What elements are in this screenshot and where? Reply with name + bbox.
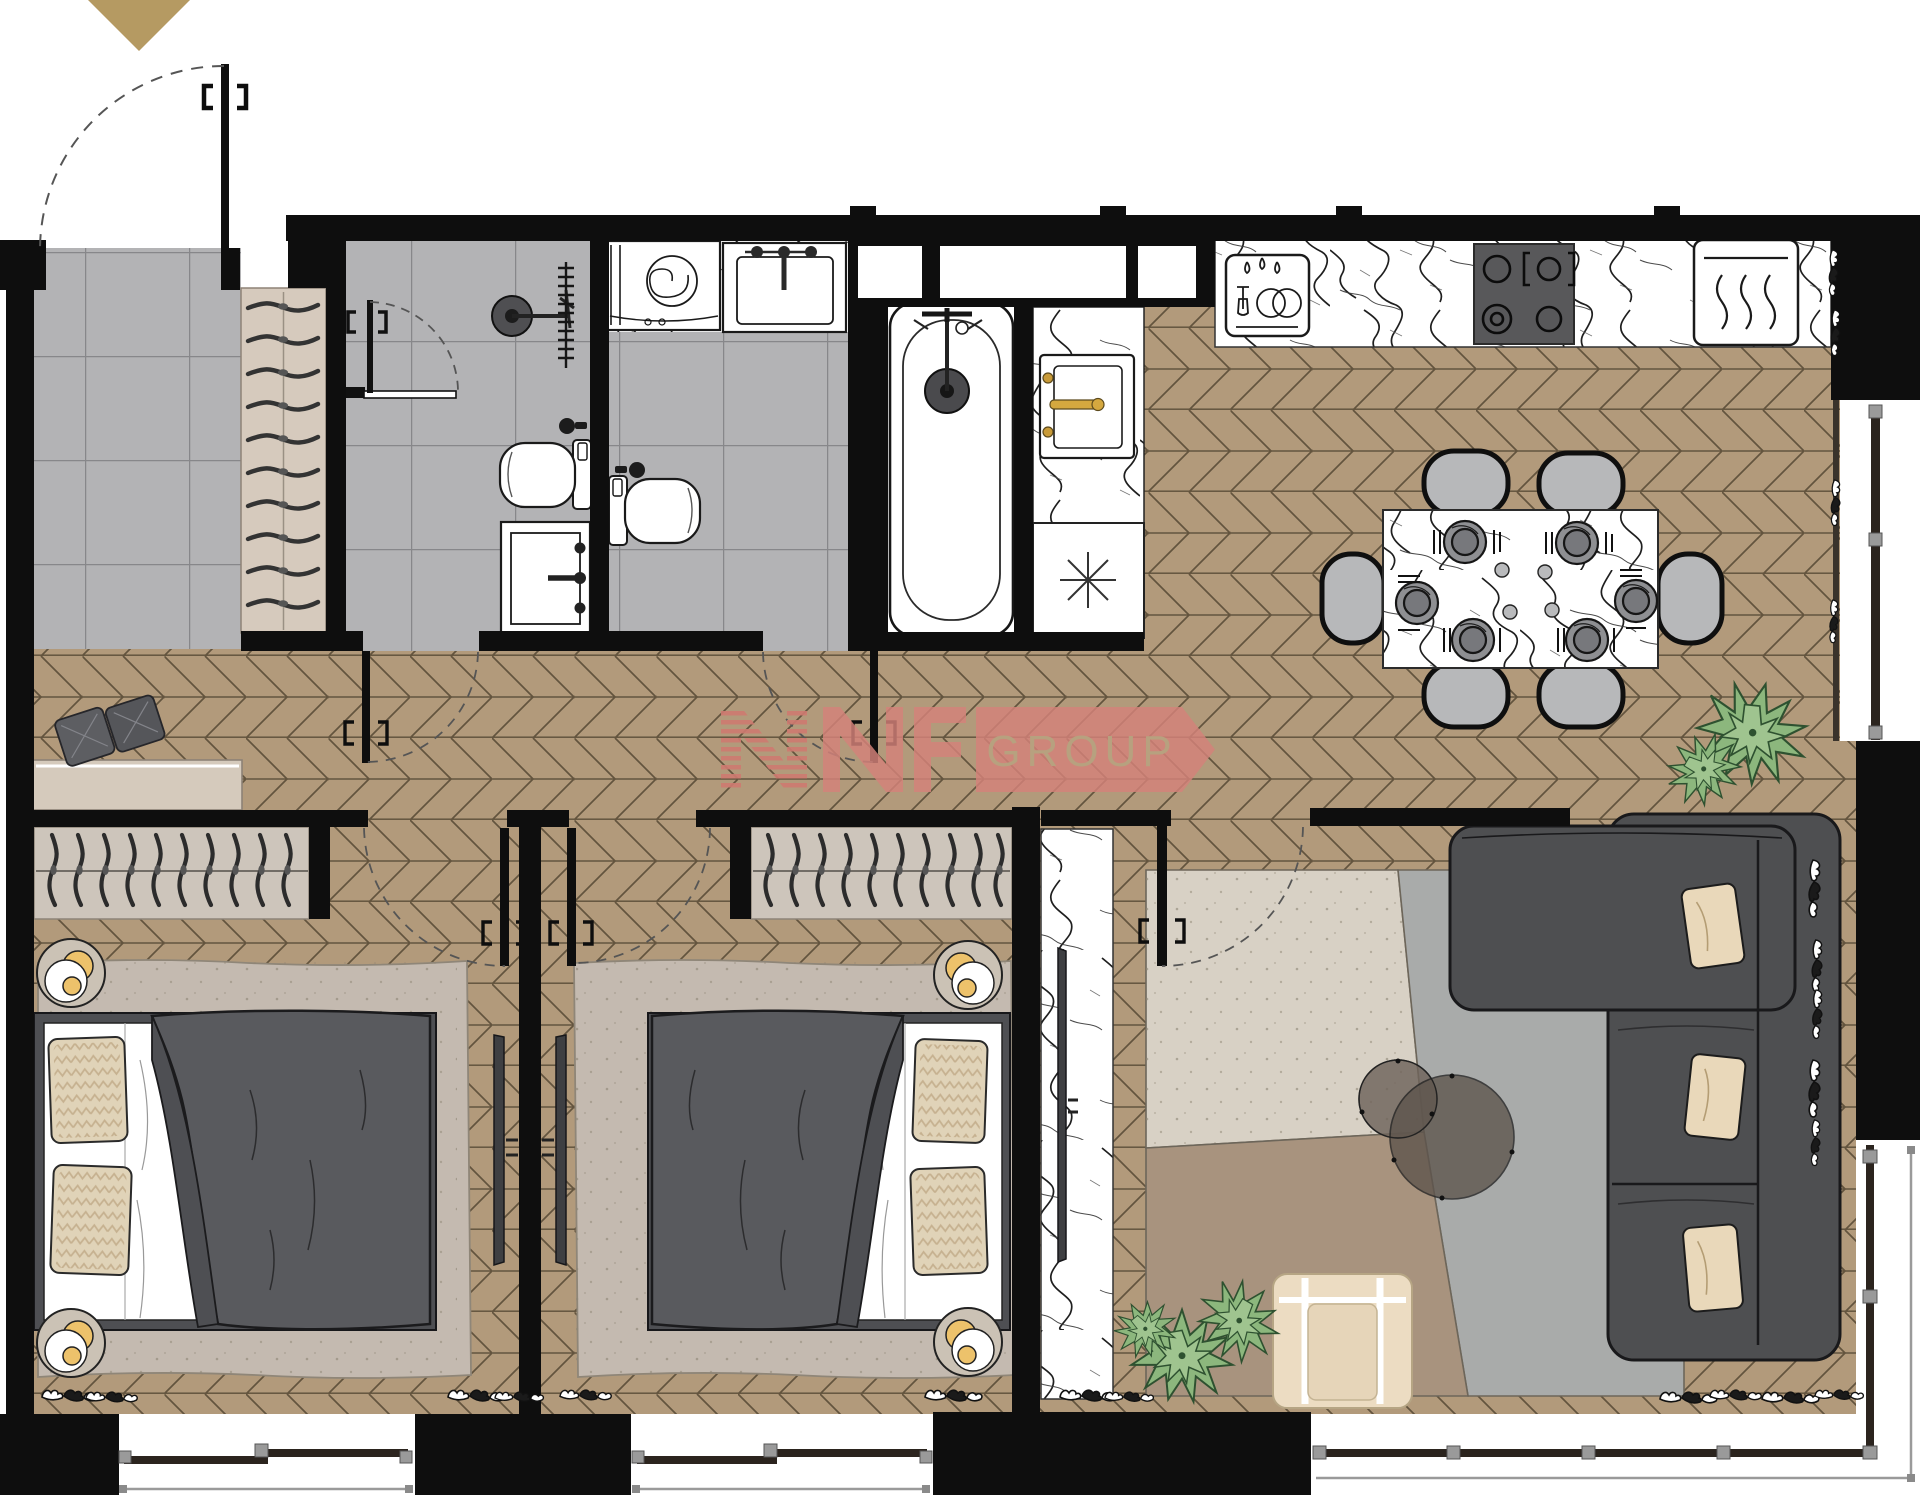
svg-text:GROUP: GROUP: [986, 727, 1177, 776]
